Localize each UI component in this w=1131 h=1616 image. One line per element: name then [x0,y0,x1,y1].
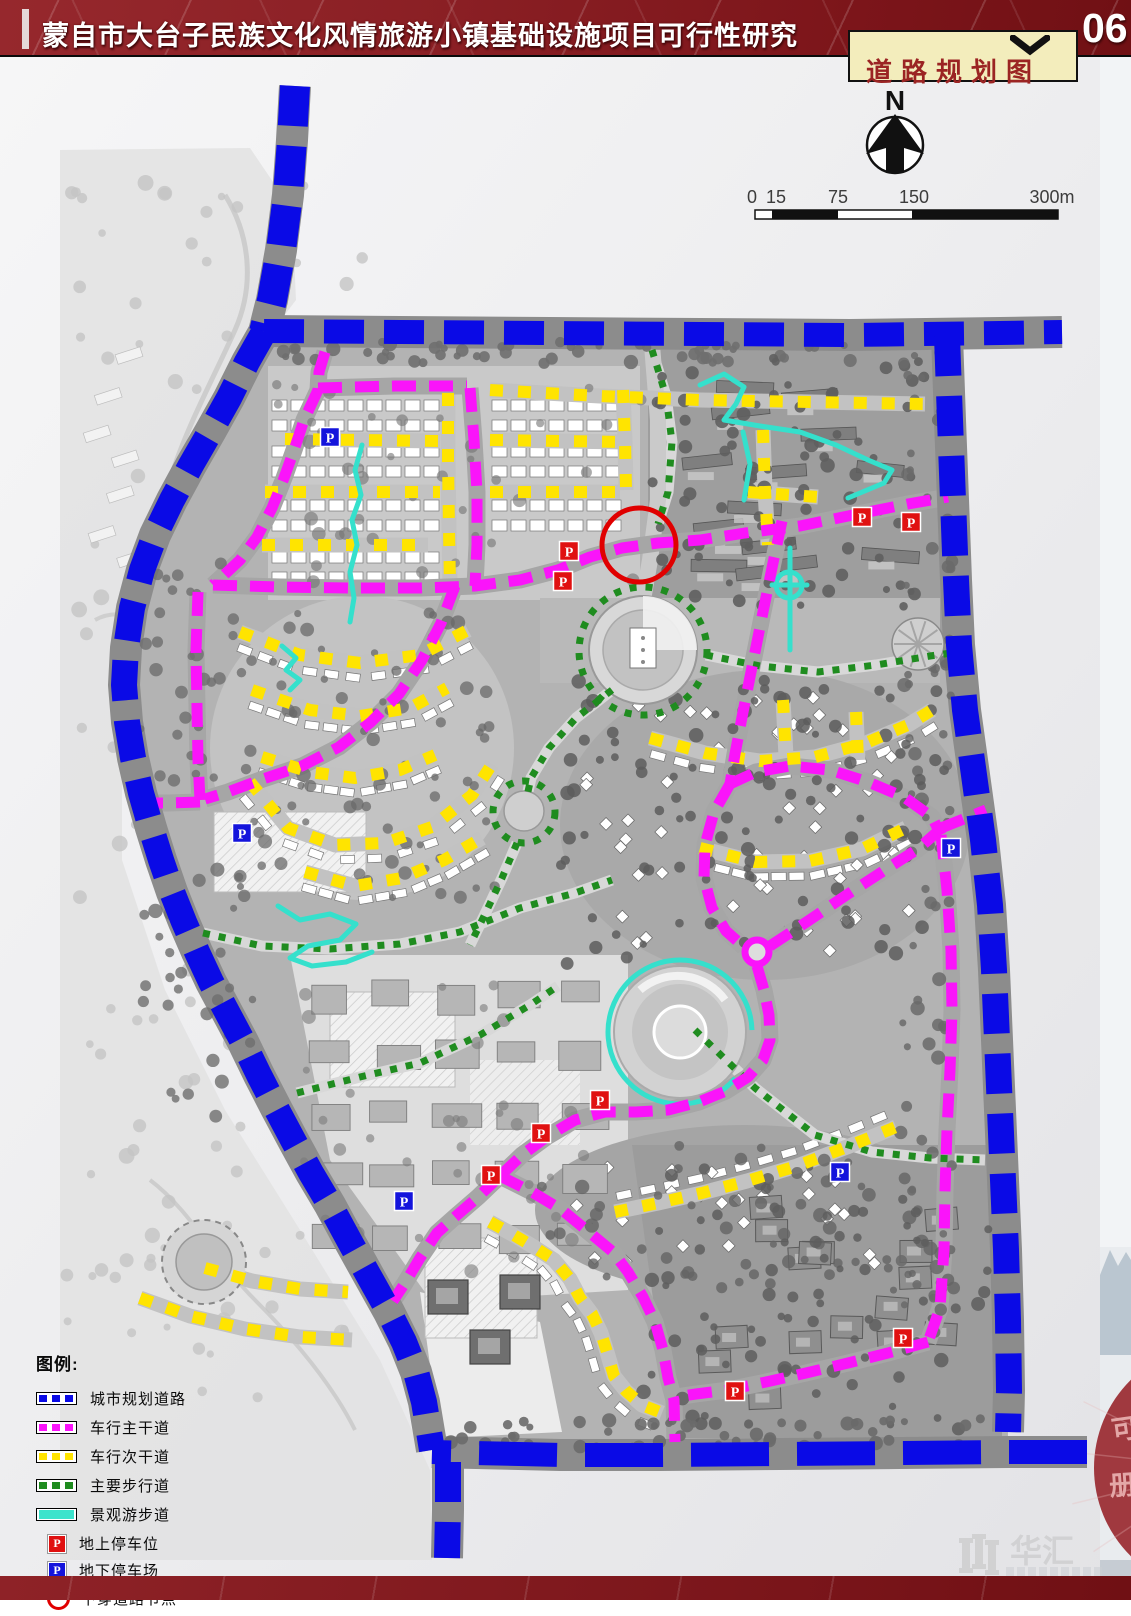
legend-item-label: 城市规划道路 [90,1388,186,1409]
svg-text:P: P [947,843,956,858]
underground-parking-marker: P [942,839,961,858]
svg-text:P: P [559,576,568,591]
svg-text:P: P [537,1128,546,1143]
legend-item-label: 主要步行道 [90,1475,170,1496]
ground-parking-marker: P [532,1124,551,1143]
footer-texture [0,1576,1131,1600]
svg-text:P: P [899,1333,908,1348]
ground-parking-marker: P [902,513,921,532]
underground-parking-marker: P [233,824,252,843]
scale-tick-label: 75 [828,187,848,207]
svg-text:P: P [836,1167,845,1182]
mountain-photo-fragment [1100,1250,1131,1355]
footer-strip [0,1576,1131,1600]
ground-parking-marker: P [482,1166,501,1185]
svg-text:P: P [565,546,574,561]
svg-text:P: P [238,828,247,843]
legend-item-label: 景观游步道 [90,1504,170,1525]
underground-parking-marker: P [395,1192,414,1211]
svg-text:P: P [907,517,916,532]
legend-item: 车行次干道 [36,1446,186,1467]
scale-tick-label: 150 [899,187,929,207]
legend-item: 城市规划道路 [36,1388,186,1409]
underground-parking-marker: P [321,428,340,447]
scale-tick-label: 0 [747,187,757,207]
legend-item-label: 地上停车位 [79,1533,159,1554]
legend-item: 主要步行道 [36,1475,186,1496]
svg-text:P: P [731,1386,740,1401]
legend-item: 景观游步道 [36,1504,186,1525]
svg-text:P: P [596,1095,605,1110]
ground-parking-marker: P [894,1329,913,1348]
map-title: 道路规划图 [866,52,1041,89]
ground-parking-marker: P [560,542,579,561]
legend-item-label: 车行次干道 [90,1446,170,1467]
legend-item: 车行主干道 [36,1417,186,1438]
page-number: 06 [1082,5,1128,52]
scale-tick-label: 300m [1029,187,1074,207]
svg-text:P: P [326,432,335,447]
seal-character: 册 [1108,1469,1131,1501]
legend-item-label: 车行主干道 [90,1417,170,1438]
watermark-brand: 华汇 [1010,1533,1074,1569]
map-title-box: 道路规划图 [848,30,1078,82]
ground-parking-marker: P [853,508,872,527]
svg-text:P: P [400,1196,409,1211]
legend-item: P地上停车位 [36,1533,186,1554]
ground-parking-marker: P [554,572,573,591]
ground-parking-marker: P [726,1382,745,1401]
title-accent-bar [22,9,29,49]
north-label: N [885,85,905,116]
underground-parking-marker: P [831,1163,850,1182]
legend-title: 图例: [36,1350,186,1375]
parking-icon: P [48,1535,66,1553]
page-title: 蒙自市大台子民族文化风情旅游小镇基础设施项目可行性研究 [42,14,798,53]
scale-tick-label: 15 [766,187,786,207]
svg-text:P: P [858,512,867,527]
seal-character: 可 [1110,1412,1131,1445]
ground-parking-marker: P [591,1091,610,1110]
svg-text:P: P [487,1170,496,1185]
